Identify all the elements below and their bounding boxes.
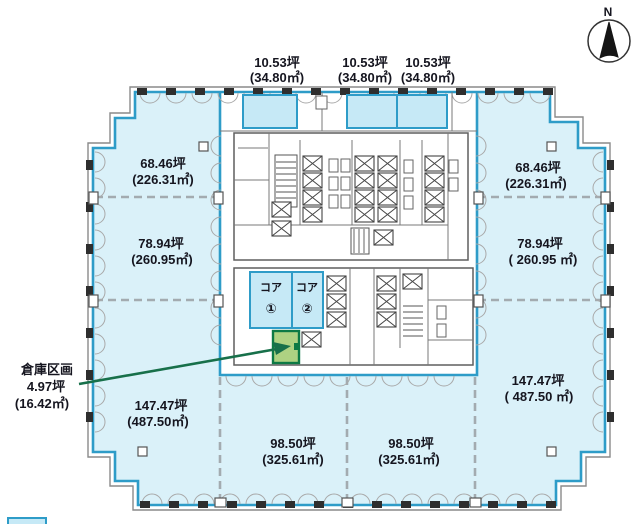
area-label-bottom2-sqm: (325.61㎡) <box>378 452 439 467</box>
area-label-top1-tsubo: 10.53坪 <box>254 55 300 70</box>
area-label-top2-sqm: (34.80㎡) <box>338 70 392 85</box>
area-label-left3-tsubo: 147.47坪 <box>135 398 188 413</box>
floor-plan-page: 10.53坪 (34.80㎡) 10.53坪 (34.80㎡) 10.53坪 (… <box>0 0 640 524</box>
area-label-top2-tsubo: 10.53坪 <box>342 55 388 70</box>
warehouse-callout-title: 倉庫区画 <box>20 362 73 377</box>
stairwell <box>275 155 297 207</box>
area-label-top3-tsubo: 10.53坪 <box>405 55 451 70</box>
core1-label: コア <box>260 281 282 294</box>
area-label-top3-sqm: (34.80㎡) <box>401 70 455 85</box>
core2-label: コア <box>296 281 318 294</box>
area-label-right1-tsubo: 68.46坪 <box>515 160 561 175</box>
area-label-left2-sqm: (260.95㎡) <box>131 252 192 267</box>
area-label-top1-sqm: (34.80㎡) <box>250 70 304 85</box>
top-room-3 <box>397 95 447 128</box>
top-room-1 <box>243 95 297 128</box>
core-room-2 <box>292 272 323 328</box>
warehouse-callout-tsubo: 4.97坪 <box>27 379 65 394</box>
core1-number: ① <box>265 301 276 316</box>
area-label-left2-tsubo: 78.94坪 <box>138 236 184 251</box>
compass: N <box>588 5 630 62</box>
area-label-right3-sqm: ( 487.50 ㎡) <box>505 389 574 404</box>
area-label-left3-sqm: (487.50㎡) <box>127 414 188 429</box>
core2-number: ② <box>301 301 312 316</box>
legend-swatch <box>8 518 46 524</box>
area-label-right1-sqm: (226.31㎡) <box>505 176 566 191</box>
area-label-bottom1-sqm: (325.61㎡) <box>262 452 323 467</box>
area-label-right2-sqm: ( 260.95 ㎡) <box>509 252 578 267</box>
warehouse-callout-sqm: (16.42㎡) <box>15 396 69 411</box>
area-label-right2-tsubo: 78.94坪 <box>517 236 563 251</box>
floor-plan: 10.53坪 (34.80㎡) 10.53坪 (34.80㎡) 10.53坪 (… <box>0 0 640 524</box>
area-label-left1-sqm: (226.31㎡) <box>132 172 193 187</box>
area-label-left1-tsubo: 68.46坪 <box>140 156 186 171</box>
top-room-2 <box>347 95 397 128</box>
compass-north-label: N <box>604 5 613 19</box>
area-label-bottom2-tsubo: 98.50坪 <box>388 436 434 451</box>
core-room-1 <box>250 272 292 328</box>
warehouse-door-mark <box>294 343 300 350</box>
area-label-right3-tsubo: 147.47坪 <box>512 373 565 388</box>
area-label-bottom1-tsubo: 98.50坪 <box>270 436 316 451</box>
